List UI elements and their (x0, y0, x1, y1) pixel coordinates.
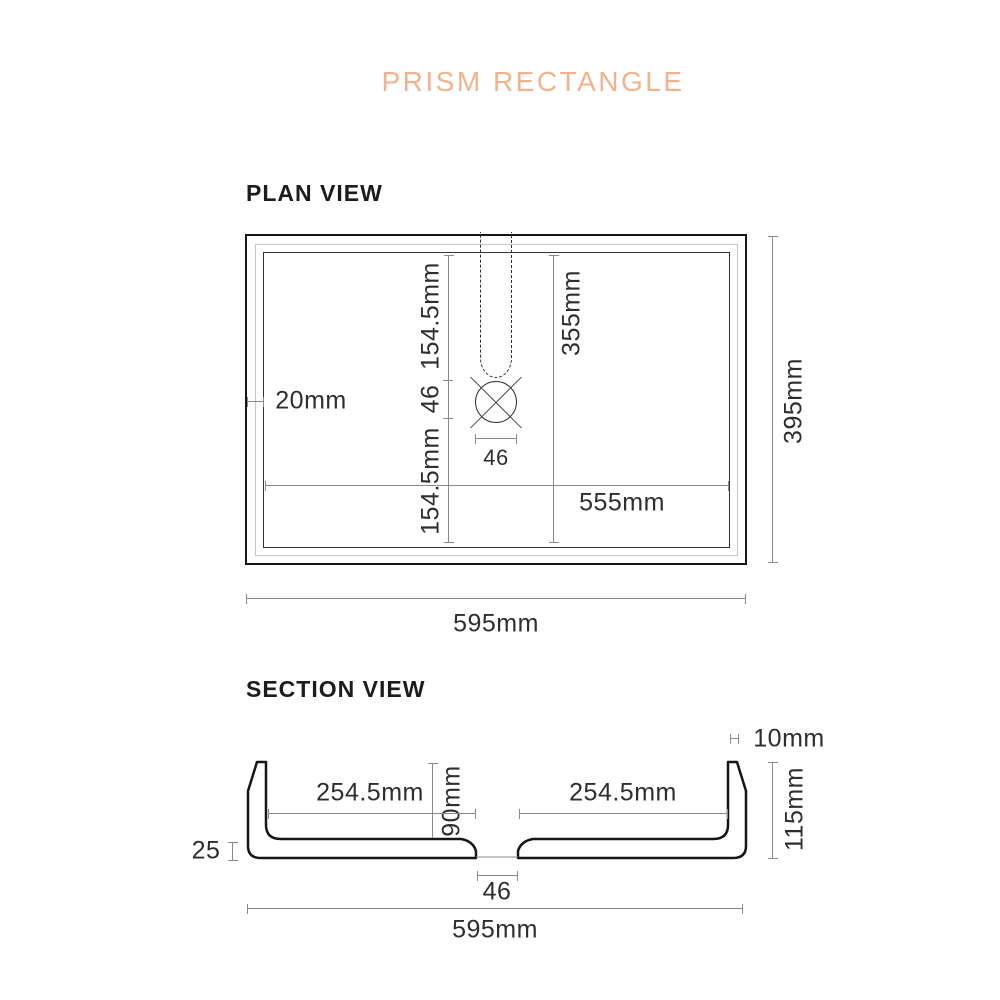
plan-dim-center-mid-label: 46 (419, 385, 444, 414)
section-dim-drain-label: 46 (483, 880, 512, 905)
plan-dim-center-top-label: 154.5mm (419, 262, 444, 370)
page-title: PRISM RECTANGLE (381, 66, 684, 98)
section-dim-drain-line (477, 875, 518, 876)
spec-sheet: PRISM RECTANGLE PLAN VIEW 154.5mm 46 154… (0, 0, 1000, 1000)
section-dim-height-line (772, 762, 773, 859)
section-dim-right-half-label: 254.5mm (569, 781, 677, 806)
plan-view-heading: PLAN VIEW (246, 180, 383, 207)
plan-dim-center-bottom-label: 154.5mm (419, 427, 444, 535)
plan-dim-inner-height-line (553, 255, 554, 543)
plan-dim-overall-width-line (246, 598, 746, 599)
plan-dim-center-chain-line (448, 255, 449, 543)
plan-dim-hole-line (475, 438, 517, 439)
tap-dashed-outline (480, 232, 512, 378)
section-view-heading: SECTION VIEW (246, 676, 425, 703)
section-profile-drawing (240, 752, 756, 868)
plan-dim-overall-height-label: 395mm (782, 358, 807, 444)
plan-dim-wall-label: 20mm (275, 389, 346, 414)
plan-dim-overall-width-label: 595mm (453, 612, 539, 637)
plan-dim-inner-height-label: 355mm (560, 270, 585, 356)
plan-dim-overall-height-line (772, 236, 773, 563)
section-right-wall (518, 762, 746, 858)
section-dim-base-line (232, 842, 233, 861)
plan-dim-hole-label: 46 (483, 447, 508, 469)
section-dim-overall-width-line (247, 908, 743, 909)
section-dim-right-half-line (519, 813, 728, 814)
section-dim-overall-width-label: 595mm (452, 918, 538, 943)
plan-dim-center-tick (443, 418, 453, 419)
section-dim-height-label: 115mm (783, 767, 808, 851)
section-dim-depth-label: 90mm (440, 765, 465, 836)
section-dim-left-half-label: 254.5mm (316, 781, 424, 806)
plan-dim-inner-width-line (265, 485, 729, 486)
section-dim-rim-label: 10mm (753, 727, 824, 752)
plan-dim-center-tick (443, 380, 453, 381)
section-dim-rim-line (730, 738, 739, 739)
plan-dim-inner-width-label: 555mm (579, 491, 665, 516)
section-dim-left-half-line (268, 813, 476, 814)
section-dim-depth-line (432, 763, 433, 838)
section-dim-base-label: 25 (192, 839, 221, 864)
plan-dim-wall-line (247, 401, 264, 402)
